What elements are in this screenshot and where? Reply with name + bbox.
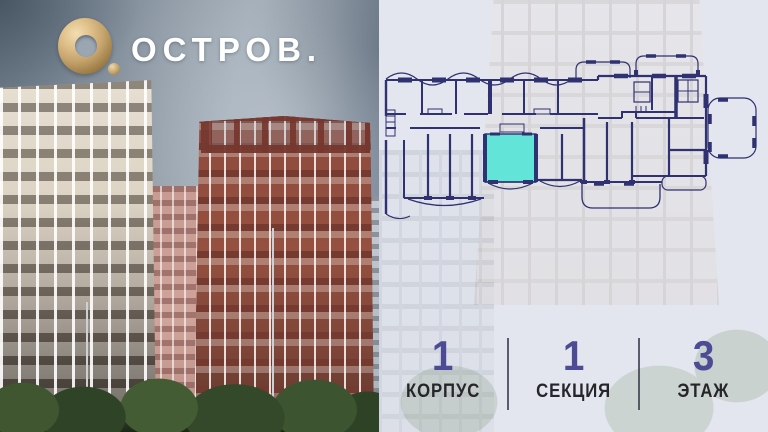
brand-name: ОСТРОВ.: [131, 31, 322, 69]
rooftop-pergola: [201, 116, 370, 153]
etazh-value: 3: [693, 334, 714, 378]
brand-logo: ОСТРОВ.: [0, 0, 379, 100]
trees-strip: [0, 374, 379, 432]
floor-plan: [384, 54, 760, 226]
etazh-label: ЭТАЖ: [678, 381, 730, 403]
korpus-label: КОРПУС: [406, 381, 480, 403]
divider: [507, 338, 509, 410]
korpus-value: 1: [432, 334, 453, 378]
sekcia-value: 1: [563, 334, 584, 378]
sekcia-label: СЕКЦИЯ: [536, 381, 611, 403]
divider: [638, 338, 640, 410]
gold-dot-icon: [108, 63, 120, 75]
plan-panel: 1 КОРПУС 1 СЕКЦИЯ 3 ЭТАЖ: [379, 0, 768, 432]
info-etazh: 3 ЭТАЖ: [640, 334, 768, 416]
info-korpus: 1 КОРПУС: [379, 334, 507, 416]
real-estate-slide: ОСТРОВ.: [0, 0, 768, 432]
info-sekcia: 1 СЕКЦИЯ: [509, 334, 637, 416]
selected-unit[interactable]: [485, 134, 536, 182]
gold-ring-icon: [58, 18, 112, 74]
unit-info-row: 1 КОРПУС 1 СЕКЦИЯ 3 ЭТАЖ: [379, 334, 768, 416]
ring-hole: [75, 35, 97, 57]
buildings-photo: ОСТРОВ.: [0, 0, 379, 432]
